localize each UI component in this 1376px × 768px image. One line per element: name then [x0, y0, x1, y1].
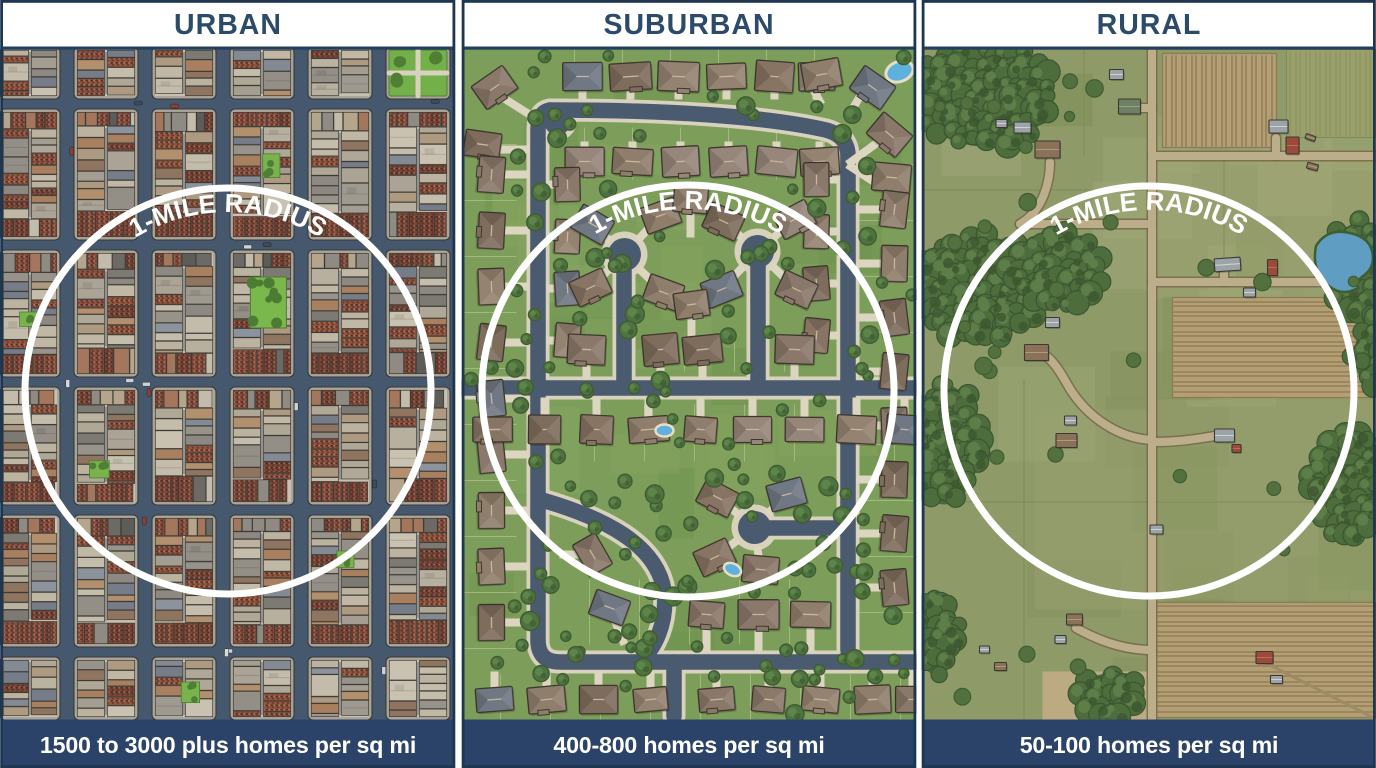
svg-text:400-800 homes per sq mi: 400-800 homes per sq mi — [553, 732, 824, 758]
svg-text:1500 to 3000 plus homes per sq: 1500 to 3000 plus homes per sq mi — [40, 732, 416, 758]
svg-text:50-100 homes per sq mi: 50-100 homes per sq mi — [1020, 732, 1279, 758]
svg-text:RURAL: RURAL — [1097, 9, 1202, 41]
svg-text:URBAN: URBAN — [174, 9, 282, 41]
svg-text:SUBURBAN: SUBURBAN — [603, 9, 774, 41]
